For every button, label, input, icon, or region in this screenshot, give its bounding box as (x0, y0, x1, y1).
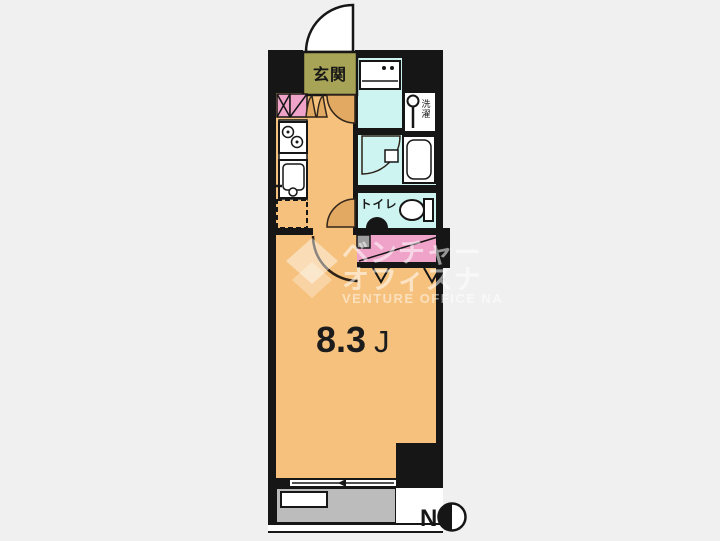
toilet-icon (400, 199, 433, 221)
entrance-door-arc (306, 5, 353, 52)
balcony-label-box (281, 492, 327, 507)
kitchen-tiles (277, 94, 307, 117)
compass: N (420, 504, 466, 533)
room-size-value: 8.3 (316, 319, 366, 360)
pillar (396, 443, 443, 488)
vanity-icon (360, 61, 400, 89)
wall-top-right (355, 50, 410, 58)
wall-left (268, 50, 276, 533)
bathtub-icon (403, 136, 435, 183)
balcony-railing (268, 523, 443, 533)
floor-plan: 玄関 (0, 0, 720, 541)
compass-label: N (420, 505, 437, 532)
room-size-label: 8.3 J (316, 319, 390, 360)
washing-machine-icon: 洗 濯 (404, 92, 436, 132)
hallway-opening (313, 228, 358, 235)
genkan-label: 玄関 (313, 65, 347, 84)
laundry-label-2: 濯 (421, 109, 430, 119)
wall-room-divider (268, 228, 313, 235)
bathroom-shelf (385, 150, 398, 162)
refrigerator-space (277, 200, 307, 228)
window (290, 478, 396, 488)
floor-plan-page: 玄関 (0, 0, 720, 541)
wall-under-bathroom (353, 185, 443, 193)
toilet-label: トイレ (360, 198, 398, 211)
watermark-line1: ベンチャー (342, 238, 482, 268)
entrance: 玄関 (303, 5, 357, 95)
wall-right-upper (436, 93, 443, 233)
wall-under-toilet (353, 228, 450, 235)
wall-window-stub (276, 478, 290, 488)
watermark-line3: VENTURE OFFICE NA (342, 291, 503, 306)
room-size-unit: J (374, 324, 390, 359)
laundry-label-1: 洗 (421, 98, 430, 109)
stove-icon (279, 122, 307, 153)
